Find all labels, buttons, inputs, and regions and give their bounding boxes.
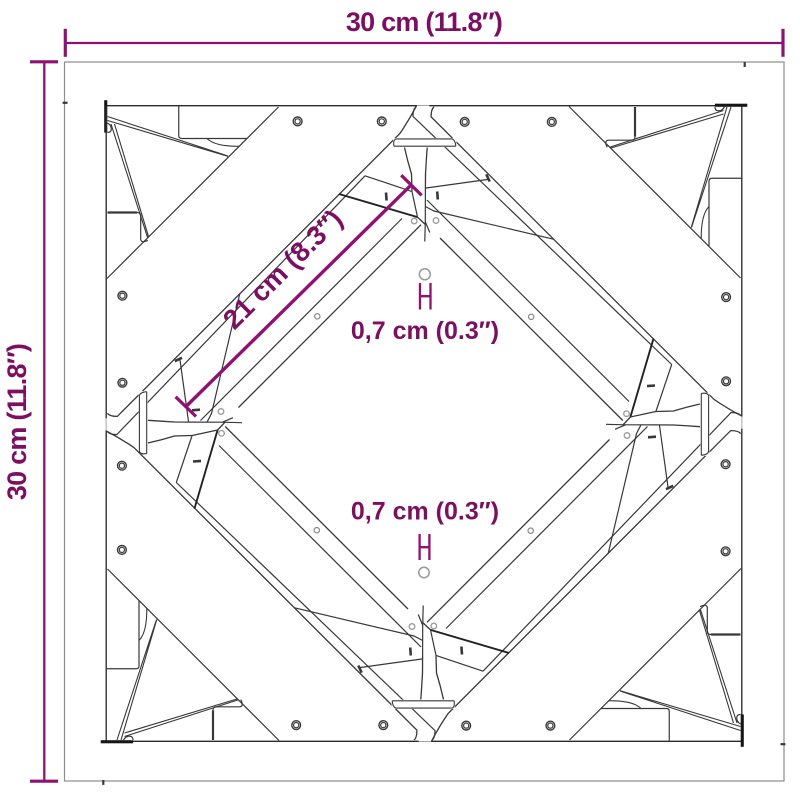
- svg-text:0,7 cm (0.3″): 0,7 cm (0.3″): [351, 498, 499, 526]
- svg-text:30 cm (11.8″): 30 cm (11.8″): [346, 7, 502, 37]
- svg-text:30 cm (11.8″): 30 cm (11.8″): [2, 344, 32, 500]
- svg-text:0,7 cm (0.3″): 0,7 cm (0.3″): [351, 317, 499, 345]
